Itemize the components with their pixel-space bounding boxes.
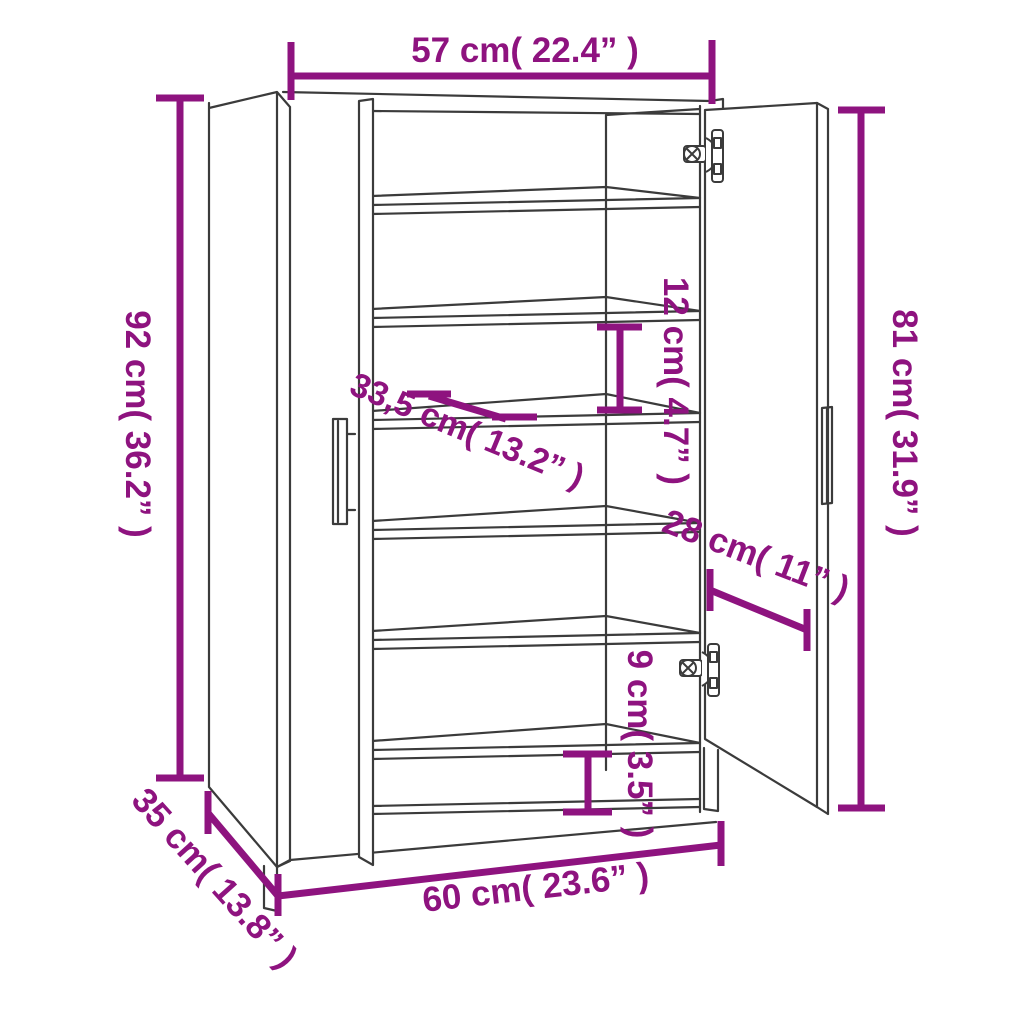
left-door [359, 99, 373, 865]
dim-left-height-label: 92 cm( 36.2” ) [118, 310, 157, 538]
product-dimension-diagram: 57 cm( 22.4” ) 92 cm( 36.2” ) 81 cm( 31.… [0, 0, 1024, 1024]
shelf [372, 297, 700, 327]
dim-left-height-line [156, 98, 204, 778]
dim-top-width-label: 57 cm( 22.4” ) [411, 31, 639, 70]
shelf [372, 506, 700, 539]
dim-shelf-gap-line [597, 327, 642, 410]
dim-right-height-label: 81 cm( 31.9” ) [885, 309, 924, 537]
dim-shelf-gap-label: 12 cm( 4.7” ) [656, 277, 695, 485]
diagram-canvas: 57 cm( 22.4” ) 92 cm( 36.2” ) 81 cm( 31.… [0, 0, 1024, 1024]
hinge-top [684, 130, 723, 182]
left-door-handle [333, 419, 355, 524]
shelf [372, 616, 700, 649]
dim-shelf-depth: 33,5 cm( 13.2” ) [345, 366, 590, 497]
dim-bottom-gap-line [563, 754, 612, 812]
cabinet-line-art [209, 92, 832, 911]
front-right-leg [704, 748, 718, 811]
dim-shelf-depth-label: 33,5 cm( 13.2” ) [345, 366, 590, 497]
left-side-panel [209, 92, 290, 867]
shelf [372, 187, 700, 214]
dim-right-height-line [838, 110, 885, 808]
dim-bottom-gap-label: 9 cm( 3.5” ) [620, 650, 659, 839]
right-door-handle [822, 407, 832, 504]
dim-right-height: 81 cm( 31.9” ) [838, 110, 924, 808]
dim-shelf-gap: 12 cm( 4.7” ) [597, 277, 695, 485]
right-door [705, 103, 817, 807]
dim-left-height: 92 cm( 36.2” ) [118, 98, 204, 778]
